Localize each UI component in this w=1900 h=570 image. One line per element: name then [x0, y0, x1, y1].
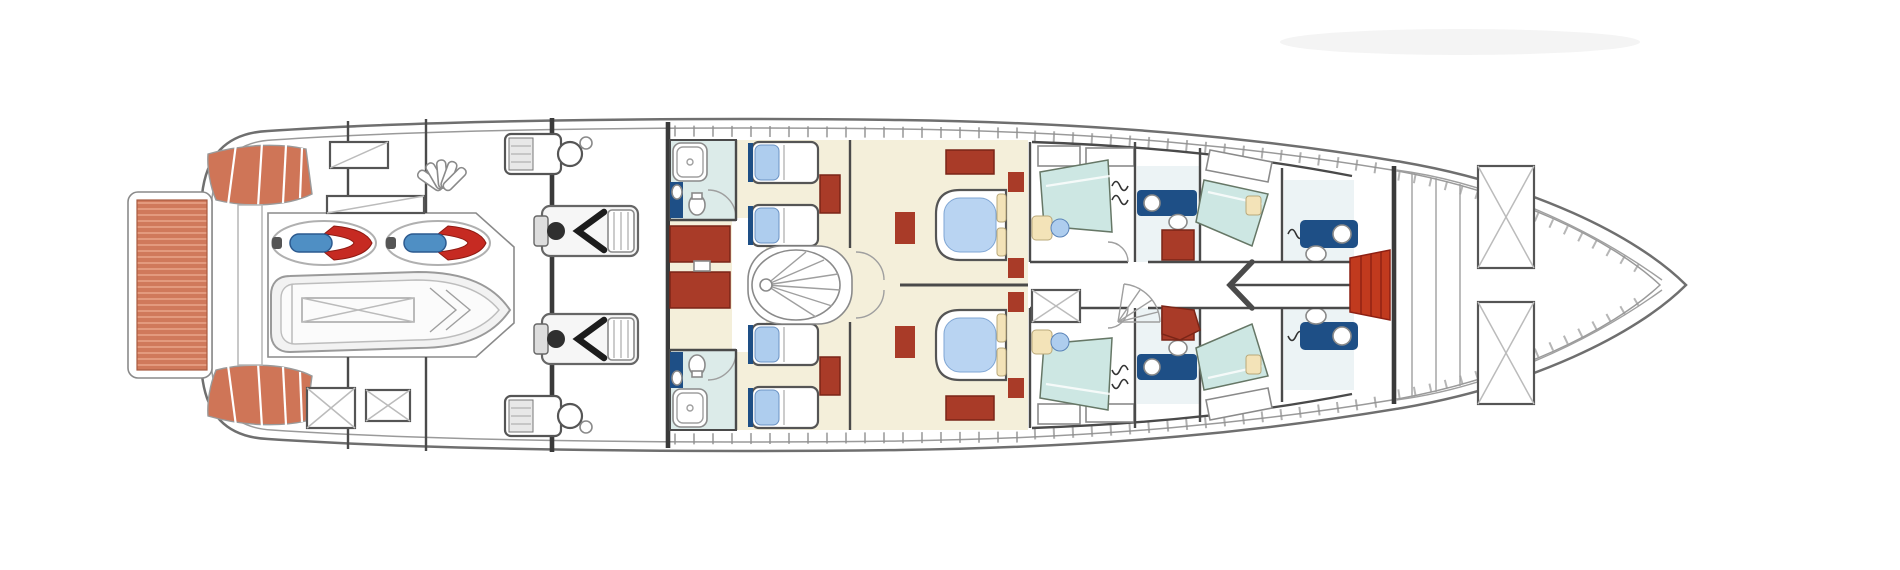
engine-starboard	[534, 314, 638, 364]
crew-wardrobe-x	[1032, 290, 1080, 322]
jet-ski-2	[386, 221, 490, 265]
pillow	[997, 194, 1006, 222]
wardrobe-shelf	[694, 261, 710, 271]
headboard	[748, 143, 753, 182]
aft-deck-hatch-1	[330, 142, 388, 168]
bow-companionway-steps	[1350, 250, 1390, 320]
swim-platform-teak	[137, 200, 207, 370]
spiral-staircase	[748, 246, 852, 324]
duvet	[944, 198, 996, 252]
lazarette-hatch-2	[366, 390, 410, 421]
vanity	[895, 212, 915, 244]
anchor-locker-hatch-starboard	[1478, 302, 1534, 404]
crew-toilet	[1169, 215, 1187, 230]
yacht-floor-plan	[0, 0, 1900, 570]
anchor-locker-hatch-port	[1478, 166, 1534, 268]
crew-locker	[1038, 146, 1080, 166]
bathroom-sink	[672, 185, 682, 199]
aft-deck-hatch-2	[327, 196, 424, 213]
crew-bathroom-fwd-starboard	[1284, 308, 1358, 390]
crew-pillow-round	[1051, 219, 1069, 237]
crew-bath-sink	[1144, 195, 1160, 211]
scan-noise	[1280, 29, 1640, 55]
headboard	[748, 206, 753, 245]
nightstand-1	[1008, 172, 1024, 192]
wardrobe-1	[670, 226, 730, 262]
stern-stairs-port	[208, 143, 312, 207]
yacht-deck-plan-canvas	[0, 0, 1900, 570]
tender-garage	[268, 213, 514, 357]
pillow	[755, 145, 779, 180]
stern-stairs-starboard	[208, 363, 312, 427]
crew-pillow	[1032, 216, 1052, 240]
twin-bed-2	[748, 205, 818, 246]
jetski-seat	[290, 234, 332, 252]
crew-bath-sink	[1333, 225, 1351, 243]
twin-bed-1	[748, 142, 818, 183]
lazarette-hatch-1	[307, 388, 355, 428]
wardrobe-2	[670, 272, 730, 308]
cabin-dresser	[820, 175, 840, 213]
pillow	[755, 208, 779, 243]
jet-ski-1	[272, 221, 376, 265]
crew-pillow	[1246, 196, 1261, 215]
nightstand-2	[1008, 258, 1024, 278]
engine-coupling	[547, 222, 565, 240]
crew-bath-cabinet	[1162, 230, 1194, 260]
engine-port	[534, 206, 638, 256]
swim-platform	[128, 192, 212, 378]
jetski-nozzle	[272, 237, 282, 249]
transom-door	[238, 205, 262, 365]
crew-toilet	[1306, 246, 1326, 262]
cabin-dresser	[946, 150, 994, 174]
pillow	[997, 228, 1006, 256]
crew-bathroom-fwd-port	[1284, 180, 1358, 262]
